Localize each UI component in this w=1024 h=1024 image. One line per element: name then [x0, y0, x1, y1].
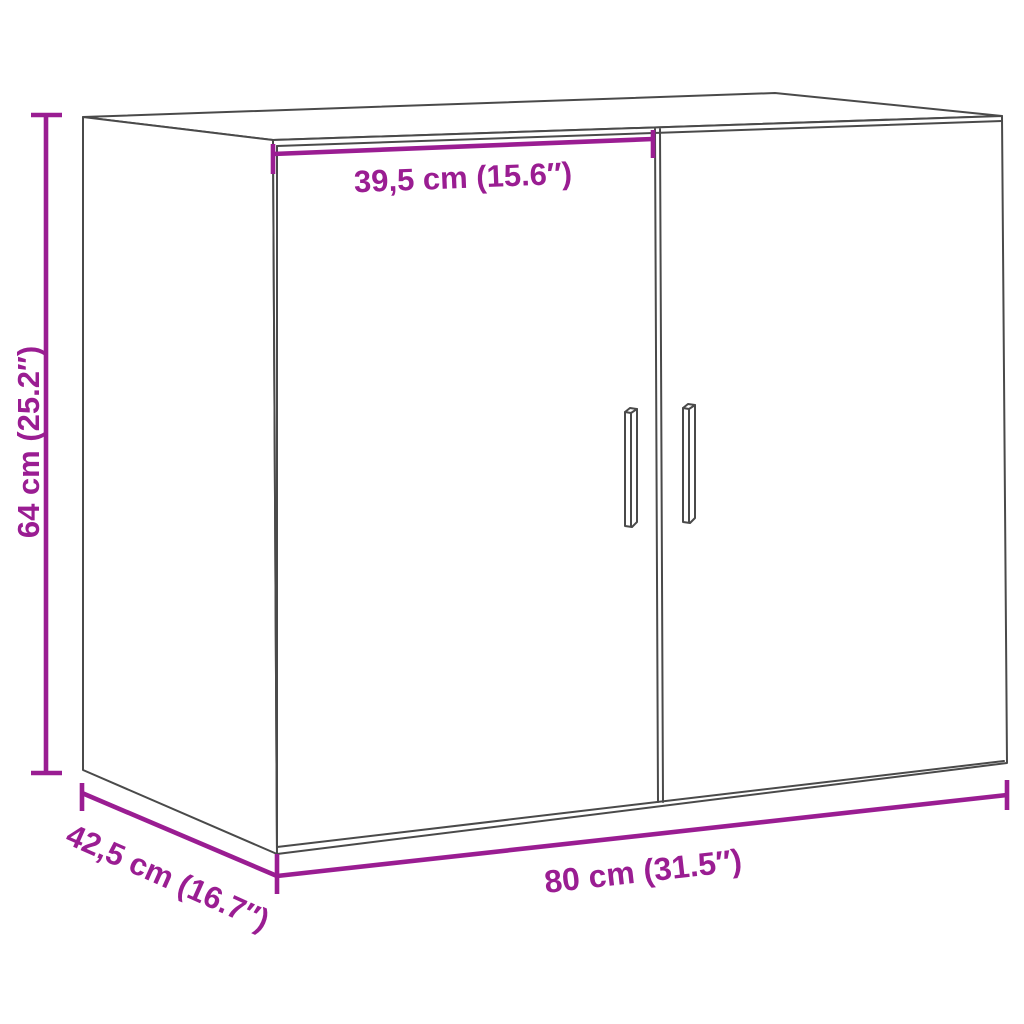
cabinet-drawing: [83, 93, 1007, 854]
height-dimension-label: 64 cm (25.2″): [11, 346, 46, 538]
product-dimension-image: 64 cm (25.2″) 39,5 cm (15.6″) 42,5 cm (1…: [0, 0, 1024, 1024]
right-door-handle: [683, 404, 695, 523]
cabinet-dimension-diagram: 64 cm (25.2″) 39,5 cm (15.6″) 42,5 cm (1…: [0, 0, 1024, 1024]
width-dimension-label: 80 cm (31.5″): [542, 842, 743, 900]
cabinet-front-face: [273, 116, 1007, 854]
left-door-handle: [625, 408, 637, 527]
cabinet-side-panel: [83, 117, 277, 854]
height-dimension: 64 cm (25.2″): [11, 115, 62, 773]
